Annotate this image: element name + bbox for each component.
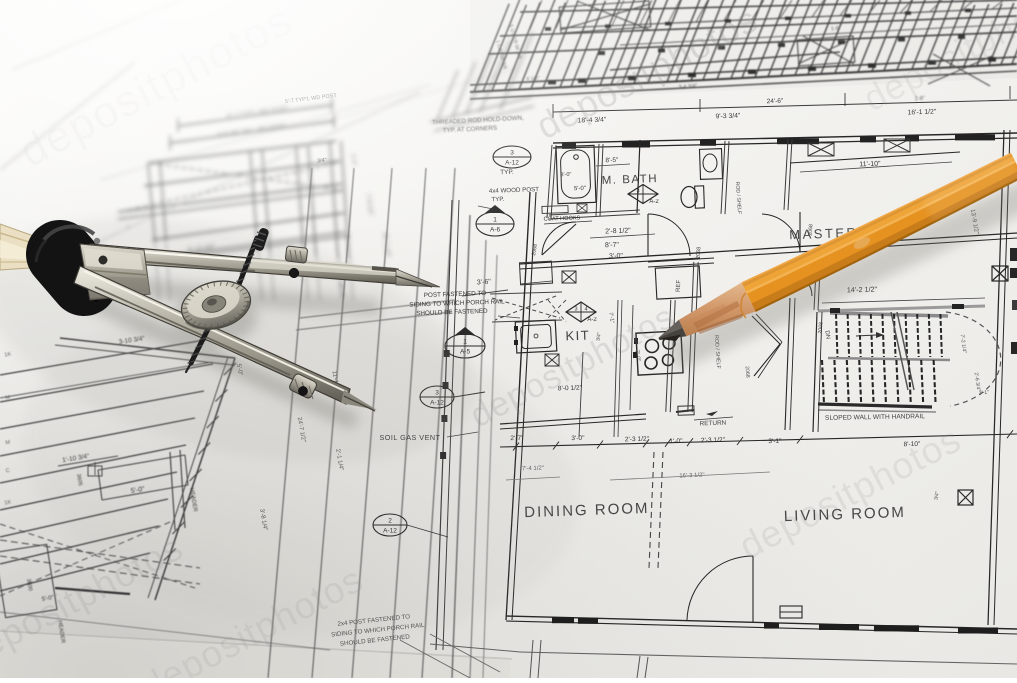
svg-text:24'-6": 24'-6" <box>767 98 784 106</box>
svg-text:1-6": 1-6" <box>831 26 841 33</box>
svg-text:3'-1": 3'-1" <box>768 438 782 445</box>
svg-text:A-2: A-2 <box>649 199 659 205</box>
svg-text:A-12: A-12 <box>505 160 519 167</box>
svg-text:3: 3 <box>510 150 514 157</box>
svg-text:REF: REF <box>676 280 682 293</box>
svg-text:RETURN: RETURN <box>700 420 727 428</box>
svg-text:2068: 2068 <box>696 247 703 260</box>
svg-text:3'-0": 3'-0" <box>560 172 571 178</box>
svg-text:A-6: A-6 <box>490 227 501 234</box>
svg-text:2'-3 1/2": 2'-3 1/2" <box>701 437 726 445</box>
svg-text:2'-8 1/2": 2'-8 1/2" <box>605 228 631 236</box>
svg-text:8'-7": 8'-7" <box>605 242 620 250</box>
svg-text:9'-3 3/4": 9'-3 3/4" <box>715 113 741 121</box>
svg-text:DN: DN <box>823 330 830 339</box>
svg-text:A-2: A-2 <box>587 317 597 323</box>
svg-text:3: 3 <box>574 307 577 313</box>
svg-text:3: 3 <box>636 189 639 195</box>
svg-text:3'-0": 3'-0" <box>571 435 585 442</box>
svg-text:2068: 2068 <box>744 366 751 378</box>
svg-text:2'-3 1/2": 2'-3 1/2" <box>625 436 650 444</box>
svg-text:X 1/2": X 1/2" <box>526 76 540 83</box>
svg-text:8'-5": 8'-5" <box>605 157 619 164</box>
svg-text:TYP.: TYP. <box>491 196 504 203</box>
svg-text:3/4": 3/4" <box>317 158 327 165</box>
svg-text:3'-1": 3'-1" <box>979 390 990 397</box>
svg-text:2068: 2068 <box>817 322 824 334</box>
svg-text:TYP.: TYP. <box>500 169 514 176</box>
svg-text:1K: 1K <box>4 499 12 506</box>
svg-text:M. BATH: M. BATH <box>602 173 659 187</box>
svg-text:1'-0": 1'-0" <box>669 438 683 445</box>
svg-text:5'-0": 5'-0" <box>574 186 586 192</box>
svg-text:3'-0": 3'-0" <box>609 253 624 261</box>
svg-text:16'-1 1/2": 16'-1 1/2" <box>908 108 937 116</box>
svg-text:1: 1 <box>493 217 497 224</box>
svg-text:4: 4 <box>584 307 587 313</box>
svg-text:1: 1 <box>463 339 467 346</box>
svg-text:3'-6": 3'-6" <box>477 278 492 286</box>
svg-text:1K: 1K <box>4 351 12 358</box>
